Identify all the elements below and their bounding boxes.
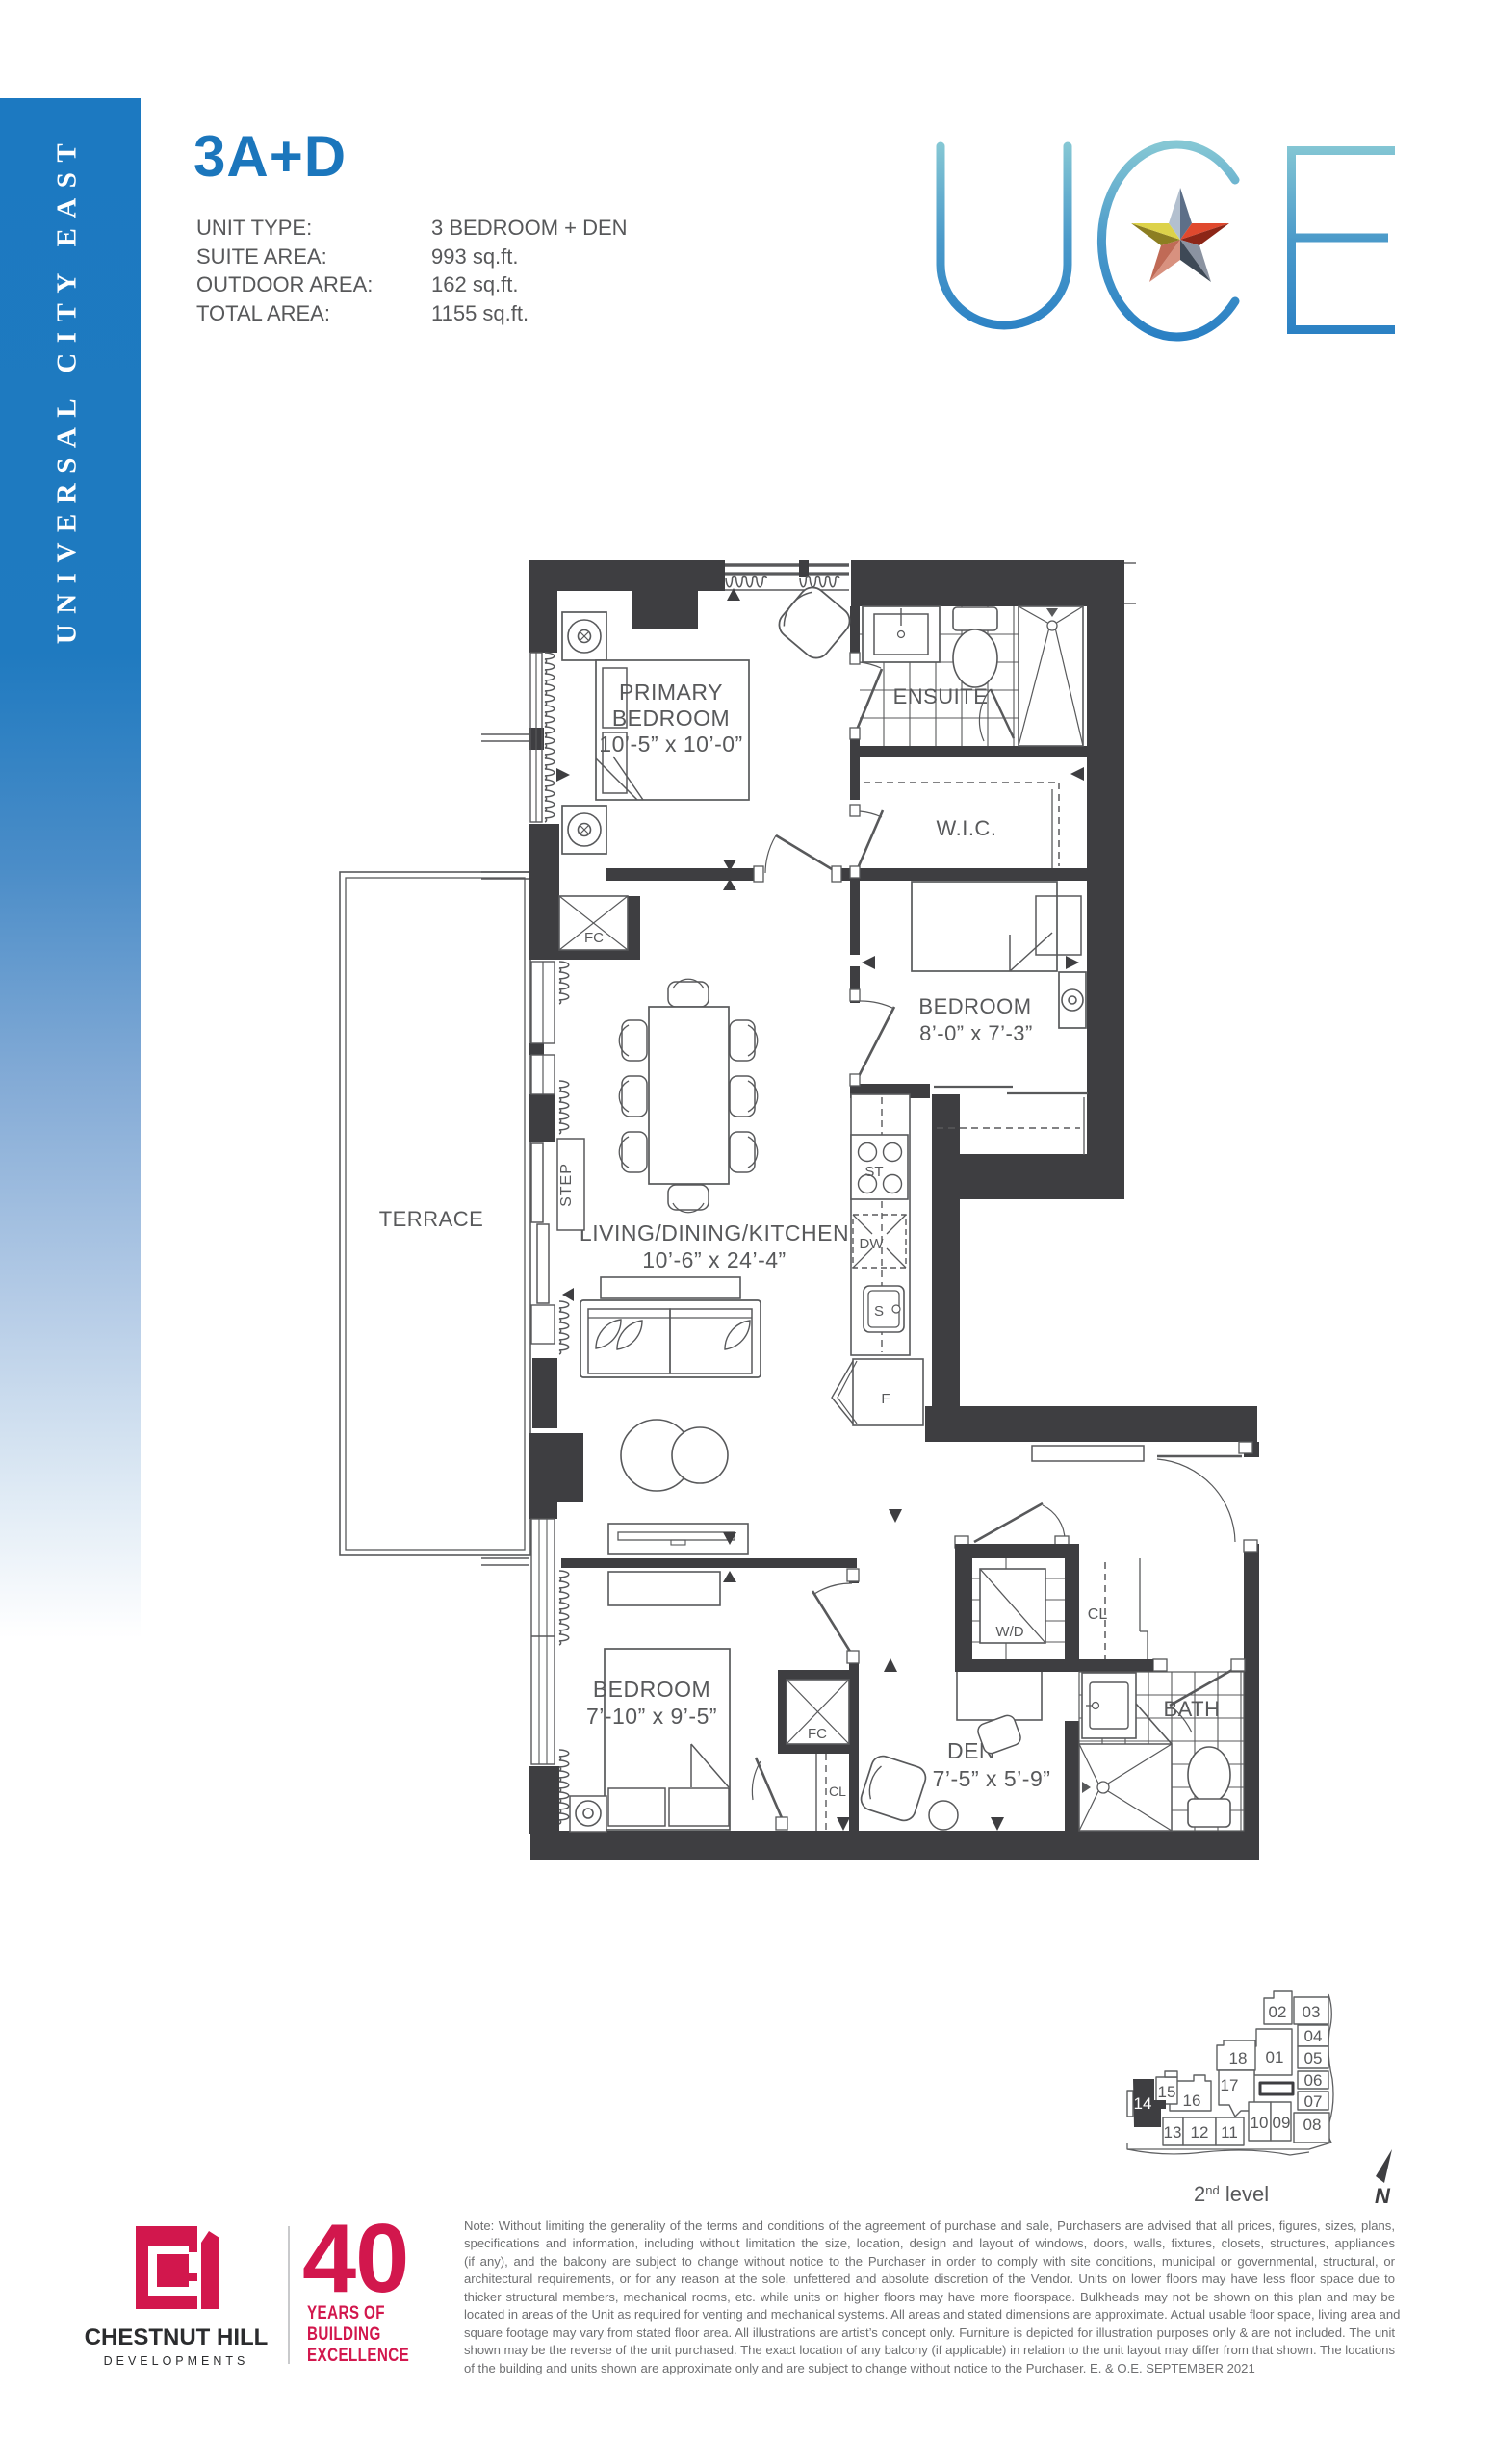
svg-text:LIVING/DINING/KITCHEN: LIVING/DINING/KITCHEN (580, 1220, 849, 1245)
svg-text:07: 07 (1304, 2092, 1323, 2111)
svg-text:06: 06 (1304, 2071, 1323, 2090)
svg-text:BATH: BATH (1163, 1697, 1220, 1721)
svg-text:05: 05 (1304, 2049, 1323, 2067)
svg-text:14: 14 (1134, 2094, 1152, 2113)
svg-text:7’-5” x 5’-9”: 7’-5” x 5’-9” (933, 1766, 1051, 1791)
svg-text:ST: ST (864, 1164, 883, 1180)
svg-text:10’-6” x 24’-4”: 10’-6” x 24’-4” (642, 1247, 786, 1272)
svg-text:7’-10” x 9’-5”: 7’-10” x 9’-5” (586, 1704, 717, 1729)
svg-text:BEDROOM: BEDROOM (593, 1677, 710, 1702)
svg-text:DEVELOPMENTS: DEVELOPMENTS (104, 2354, 249, 2368)
svg-text:DW: DW (860, 1236, 885, 1252)
svg-text:2nd level: 2nd level (1194, 2182, 1269, 2206)
svg-text:08: 08 (1303, 2116, 1322, 2134)
svg-text:PRIMARY: PRIMARY (619, 680, 723, 705)
svg-text:W/D: W/D (995, 1624, 1023, 1640)
svg-text:11: 11 (1221, 2123, 1238, 2142)
svg-text:FC: FC (584, 930, 604, 946)
svg-text:TERRACE: TERRACE (379, 1207, 484, 1231)
svg-text:F: F (881, 1391, 890, 1407)
svg-text:STEP: STEP (558, 1163, 575, 1207)
svg-text:01: 01 (1266, 2048, 1284, 2066)
svg-text:10’-5” x 10’-0”: 10’-5” x 10’-0” (599, 731, 742, 757)
svg-text:W.I.C.: W.I.C. (937, 816, 997, 840)
svg-text:16: 16 (1183, 2092, 1201, 2110)
svg-text:04: 04 (1304, 2027, 1323, 2045)
svg-text:S: S (874, 1303, 884, 1320)
svg-text:15: 15 (1158, 2083, 1176, 2101)
svg-text:FC: FC (808, 1726, 827, 1742)
svg-text:18: 18 (1229, 2049, 1248, 2067)
svg-text:CL: CL (1088, 1606, 1108, 1623)
svg-text:03: 03 (1303, 2003, 1321, 2021)
svg-text:8’-0” x 7’-3”: 8’-0” x 7’-3” (919, 1021, 1033, 1045)
svg-text:02: 02 (1269, 2003, 1287, 2021)
svg-text:BEDROOM: BEDROOM (612, 706, 730, 731)
svg-text:BEDROOM: BEDROOM (918, 994, 1031, 1018)
svg-text:N: N (1375, 2184, 1391, 2208)
svg-text:12: 12 (1191, 2123, 1209, 2142)
svg-text:CL: CL (829, 1784, 846, 1799)
svg-text:13: 13 (1164, 2123, 1182, 2142)
svg-text:17: 17 (1221, 2076, 1239, 2094)
svg-text:09: 09 (1273, 2114, 1291, 2132)
svg-text:10: 10 (1251, 2114, 1269, 2132)
svg-text:CHESTNUT HILL: CHESTNUT HILL (85, 2324, 269, 2350)
